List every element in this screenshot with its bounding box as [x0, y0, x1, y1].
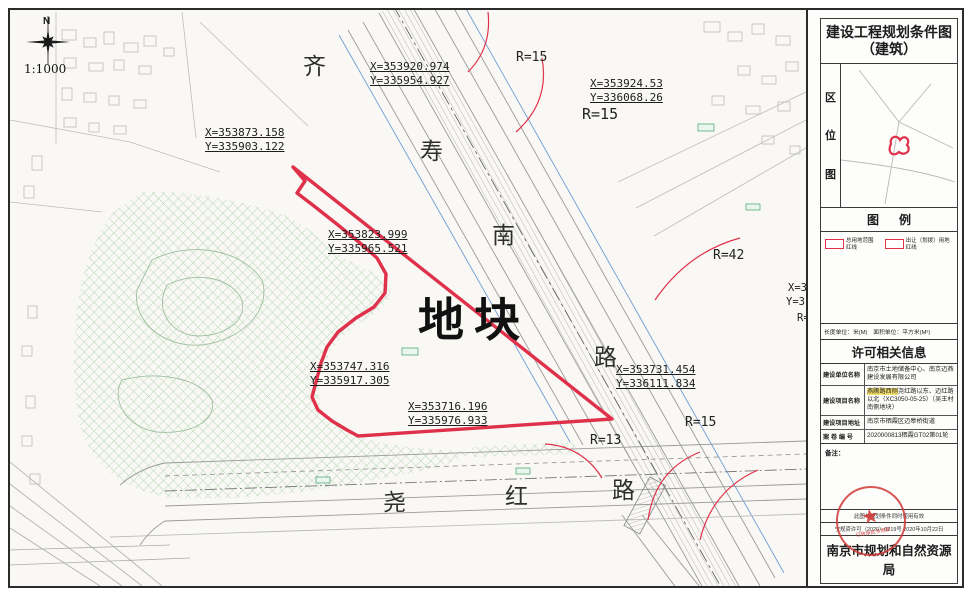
coord-x: X=353731.454 — [616, 363, 695, 377]
row-label: 建设项目地址 — [821, 416, 865, 429]
drawing-title-line1: 建设工程规划条件图 — [826, 24, 952, 42]
authority-name: 南京市规划和自然资源局 — [820, 535, 958, 584]
footer-note-2: 宁规资许可（2020）0219号 2020年10月22日 — [820, 522, 958, 536]
road-name-char: 路 — [594, 338, 617, 372]
road-name-char: 寿 — [420, 132, 443, 166]
coordinate-label: X=353716.196 Y=335976.933 — [408, 400, 487, 428]
coord-y: Y=335917.305 — [310, 374, 389, 388]
coordinate-label: X=353873.158 Y=335903.122 — [205, 126, 284, 154]
table-row: 建设单位名称 南京市土地储备中心、南京迈燕建设发展有限公司 — [821, 364, 957, 386]
coord-x: X=353716.196 — [408, 400, 487, 414]
coord-x: X=353924.53 — [590, 77, 663, 91]
highlighted-text: 燕腾路西侧 — [867, 388, 898, 395]
row-label: 案 卷 编 号 — [821, 430, 865, 443]
location-mini-map-linework — [841, 64, 957, 207]
coord-y: Y=335965.521 — [328, 242, 407, 256]
legend-item: 总用地范围红线 — [825, 238, 879, 317]
radius-label: R=15 — [516, 50, 547, 65]
svg-text:N: N — [43, 16, 50, 27]
footer-note-1: 此图与规划条件同时使用有效 — [820, 509, 958, 523]
remark-section: 备注： — [820, 443, 958, 510]
location-label-char: 区 — [825, 89, 836, 105]
row-label: 建设单位名称 — [821, 364, 865, 385]
permit-info-table: 建设单位名称 南京市土地储备中心、南京迈燕建设发展有限公司 建设项目名称 燕腾路… — [820, 363, 958, 444]
coordinate-label: X=353747.316 Y=335917.305 — [310, 360, 389, 388]
remark-label: 备注： — [825, 450, 845, 457]
row-value: 南京市土地储备中心、南京迈燕建设发展有限公司 — [865, 364, 957, 385]
radius-label: R=13 — [590, 433, 621, 448]
row-value: 2020000813栖霞GT02第01轮 — [865, 430, 957, 443]
coord-y: Y=335976.933 — [408, 414, 487, 428]
coordinate-label: X=353924.53 Y=336068.26 — [590, 77, 663, 105]
legend-item-label: 总用地范围红线 — [846, 238, 879, 252]
coord-x: X=353920.974 — [370, 60, 449, 74]
row-value: 燕腾路西侧尧红路以东、迈红路以北（XC3050-05-25）（吴王村南侧地块） — [865, 386, 957, 415]
road-name-char: 齐 — [303, 47, 326, 81]
coordinate-label: X=353920.974 Y=335954.927 — [370, 60, 449, 88]
coord-x: X=353873.158 — [205, 126, 284, 140]
site-plan-map: N 1:1000 X=353920.974 Y=335954.927 X=353… — [10, 10, 808, 586]
coord-x: X=353823.999 — [328, 228, 407, 242]
coordinate-label: X=353731.454 Y=336111.834 — [616, 363, 695, 391]
coord-x: X=353747.316 — [310, 360, 389, 374]
legend-section: 图 例 总用地范围红线 出让（划拨）用地红线 长度单位：米(M) 面积单位：平方… — [820, 207, 958, 340]
coordinate-label: X=353823.999 Y=335965.521 — [328, 228, 407, 256]
table-row: 案 卷 编 号 2020000813栖霞GT02第01轮 — [821, 430, 957, 443]
radius-label: R=15 — [582, 105, 618, 123]
radius-label: R=42 — [713, 248, 744, 263]
units-note: 长度单位：米(M) 面积单位：平方米(M²) — [821, 323, 957, 339]
legend-item-label: 出让（划拨）用地红线 — [906, 238, 953, 252]
title-block-sidebar: 建设工程规划条件图 （建筑） 区 位 图 — [820, 18, 958, 584]
road-name-char: 南 — [492, 216, 515, 250]
plot-label: 地块 — [418, 284, 530, 350]
map-linework: N — [10, 10, 808, 586]
legend-header: 图 例 — [821, 208, 957, 232]
road-name-char: 路 — [612, 471, 635, 505]
edge-radius: R= — [797, 312, 808, 324]
coord-y: Y=336111.834 — [616, 377, 695, 391]
row-value: 南京市栖霞区迈皋桥街道 — [865, 416, 957, 429]
planning-drawing-canvas: N 1:1000 X=353920.974 Y=335954.927 X=353… — [0, 0, 974, 598]
edge-coord-x: X=3 — [788, 282, 807, 294]
row-label: 建设项目名称 — [821, 386, 865, 415]
location-label-char: 图 — [825, 166, 836, 182]
redline-swatch-icon — [825, 239, 844, 249]
location-map-section: 区 位 图 — [820, 63, 958, 208]
coord-y: Y=335903.122 — [205, 140, 284, 154]
coord-y: Y=335954.927 — [370, 74, 449, 88]
table-row: 建设项目地址 南京市栖霞区迈皋桥街道 — [821, 416, 957, 430]
location-label-char: 位 — [825, 127, 836, 143]
drawing-title: 建设工程规划条件图 （建筑） — [820, 18, 958, 64]
location-site-outline — [890, 137, 909, 154]
edge-coord-y: Y=3 — [786, 296, 805, 308]
location-mini-map — [841, 64, 957, 207]
road-name-char: 红 — [505, 477, 528, 511]
map-scale: 1:1000 — [24, 62, 66, 76]
drawing-title-line2: （建筑） — [861, 41, 917, 59]
permit-info-header: 许可相关信息 — [820, 339, 958, 364]
location-map-label: 区 位 图 — [821, 64, 841, 207]
radius-label: R=15 — [685, 415, 716, 430]
coord-y: Y=336068.26 — [590, 91, 663, 105]
road-name-char: 尧 — [383, 483, 406, 517]
redline-swatch-icon — [885, 239, 904, 249]
table-row: 建设项目名称 燕腾路西侧尧红路以东、迈红路以北（XC3050-05-25）（吴王… — [821, 386, 957, 416]
legend-item: 出让（划拨）用地红线 — [885, 238, 953, 317]
